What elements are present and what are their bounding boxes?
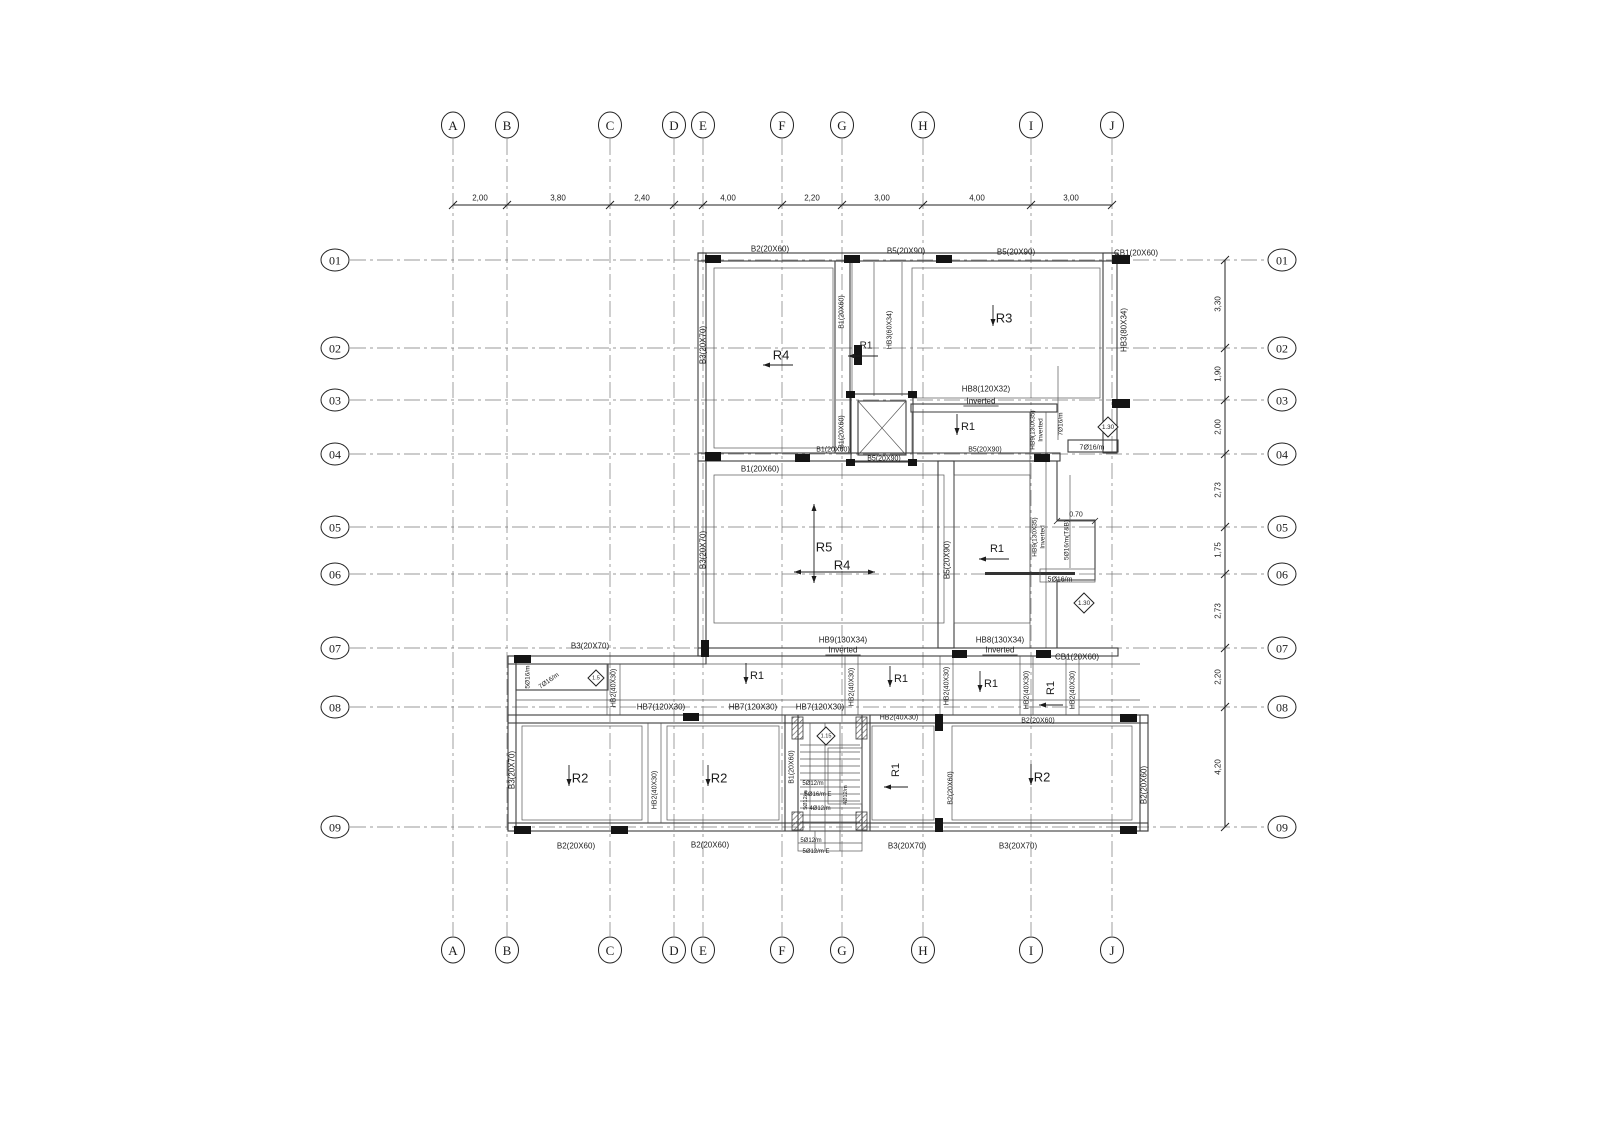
grid-bubble-label: G bbox=[837, 943, 846, 958]
beam-label-rotated: B1(20X60) bbox=[789, 750, 796, 783]
beam-label-rotated: B2(20X60) bbox=[948, 771, 955, 804]
arrowhead bbox=[848, 354, 855, 359]
beam-label-rotated: B3(20X70) bbox=[699, 531, 708, 570]
grid-bubble-label: A bbox=[448, 943, 458, 958]
dimension-value: 1,90 bbox=[1214, 366, 1223, 382]
grid-bubble-label: G bbox=[837, 118, 846, 133]
grid-bubble-label: D bbox=[669, 118, 678, 133]
grid-bubble-label: 06 bbox=[329, 568, 341, 582]
beam-label-rotated: B3(20X70) bbox=[508, 751, 517, 790]
beam-label-rotated: HB2(40X30) bbox=[944, 667, 951, 706]
arrowhead bbox=[763, 363, 770, 368]
room-r3-outline bbox=[912, 268, 1100, 398]
beam-label: B3(20X70) bbox=[888, 842, 927, 851]
dimension-value: 4,00 bbox=[720, 194, 736, 203]
dimension-value: 2,20 bbox=[804, 194, 820, 203]
beam-label-rotated: 4Ø12/m bbox=[843, 785, 849, 805]
beam-label: B2(20X60) bbox=[557, 842, 596, 851]
grid-bubble-label: E bbox=[699, 943, 707, 958]
beam-label-rotated: B1(20X60) bbox=[839, 415, 846, 448]
beam-label: B2(20X60) bbox=[1021, 718, 1054, 725]
grid-bubble-label: 06 bbox=[1276, 568, 1288, 582]
drawing-sheet: AABBCCDDEEFFGGHHIIJJ01010202030304040505… bbox=[0, 0, 1600, 1131]
beam-label: HB7(120X30) bbox=[796, 703, 845, 712]
beam-label: 5Ø12/m E bbox=[802, 849, 829, 855]
grid-bubble-label: E bbox=[699, 118, 707, 133]
dimension-value: 3,00 bbox=[1063, 194, 1079, 203]
arrowhead bbox=[812, 504, 817, 511]
room-label-r4: R4 bbox=[773, 348, 790, 363]
dimension-value: 3,80 bbox=[550, 194, 566, 203]
beam-label: B3(20X70) bbox=[999, 842, 1038, 851]
rebar-bar bbox=[985, 572, 1075, 575]
grid-bubble-label: 01 bbox=[1276, 254, 1288, 268]
grid-bubble-label: 07 bbox=[1276, 642, 1288, 656]
grid-bubble-label: 05 bbox=[1276, 521, 1288, 535]
grid-bubble-label: 04 bbox=[1276, 448, 1288, 462]
beam-wing-top bbox=[508, 656, 706, 664]
room-label-r2: R2 bbox=[572, 771, 589, 786]
grid-bubble-label: C bbox=[606, 943, 615, 958]
grid-bubble-label: I bbox=[1029, 118, 1033, 133]
grid-bubble-label: 09 bbox=[329, 821, 341, 835]
room-label-r1: R1 bbox=[894, 673, 908, 685]
beam-label: HB7(120X30) bbox=[637, 703, 686, 712]
beam-label: HB9(130X34) bbox=[819, 636, 868, 645]
dimension-value: 4,20 bbox=[1214, 759, 1223, 775]
grid-bubble-label: 03 bbox=[329, 394, 341, 408]
grid-bubble-label: J bbox=[1109, 118, 1114, 133]
rebar-label-diagonal: 7Ø16/m bbox=[538, 672, 561, 691]
grid-bubble-label: 08 bbox=[1276, 701, 1288, 715]
dimension-value: 2,73 bbox=[1214, 482, 1223, 498]
grid-bubble-label: I bbox=[1029, 943, 1033, 958]
grid-bubble-label: F bbox=[778, 943, 785, 958]
dimension-value: 2,00 bbox=[1214, 419, 1223, 435]
beam-wing-left bbox=[508, 656, 516, 831]
beam-label: B3(20X70) bbox=[571, 642, 610, 651]
beam-label-rotated: HB2(40X30) bbox=[652, 771, 659, 810]
arrowhead bbox=[979, 557, 986, 562]
level-value: 1.5 bbox=[592, 676, 600, 682]
grid-bubble-label: C bbox=[606, 118, 615, 133]
beam-label: B2(20X60) bbox=[691, 841, 730, 850]
grid-bubble-label: B bbox=[503, 118, 512, 133]
arrowhead bbox=[888, 680, 893, 687]
beam-label-rotated: B5(20X90) bbox=[943, 541, 952, 580]
beam-label-rotated: HB2(40X30) bbox=[1024, 671, 1031, 710]
annotation-layer: AABBCCDDEEFFGGHHIIJJ01010202030304040505… bbox=[321, 112, 1296, 963]
dimension-value: 3,00 bbox=[874, 194, 890, 203]
dimension-value: 2,40 bbox=[634, 194, 650, 203]
grid-bubble-label: 07 bbox=[329, 642, 341, 656]
beam-label-rotated: 7Ø16/m bbox=[1058, 412, 1065, 435]
beam-label: Inverted bbox=[967, 397, 996, 406]
beam-label-rotated: 5Ø16/m bbox=[525, 665, 532, 688]
room-label-r1: R1 bbox=[984, 678, 998, 690]
room-label-r1: R1 bbox=[890, 763, 902, 777]
beam-label: HB2(40X30) bbox=[880, 715, 919, 722]
level-value: 1.30 bbox=[1102, 424, 1115, 431]
beam-label: CB1(20X60) bbox=[1055, 653, 1099, 662]
grid-bubble-label: 02 bbox=[329, 342, 341, 356]
beam-label-rotated: 5Ø12/m bbox=[803, 790, 809, 810]
beam-label-rotated: B1(20X60) bbox=[839, 295, 846, 328]
grid-bubble-label: 04 bbox=[329, 448, 341, 462]
beam-label: Inverted bbox=[986, 646, 1015, 655]
grid-bubble-label: 05 bbox=[329, 521, 341, 535]
beam-label: 5Ø12/m bbox=[802, 781, 823, 787]
room-label-r2: R2 bbox=[1034, 770, 1051, 785]
beam-label-rotated: B2(20X60) bbox=[1140, 766, 1149, 805]
dimension-value: 2,73 bbox=[1214, 603, 1223, 619]
beam-label-rotated: HB3(80X34) bbox=[1120, 308, 1129, 352]
arrowhead bbox=[884, 785, 891, 790]
beam-label-rotated: B3(20X70) bbox=[699, 326, 708, 365]
grid-bubble-label: A bbox=[448, 118, 458, 133]
grid-layer bbox=[350, 139, 1268, 936]
room-r1-outline-low bbox=[872, 726, 934, 820]
grid-bubble-label: 09 bbox=[1276, 821, 1288, 835]
dimension-value: 4,00 bbox=[969, 194, 985, 203]
grid-bubble-label: J bbox=[1109, 943, 1114, 958]
beam-label: 5Ø12/m bbox=[800, 838, 821, 844]
beam-label-rotated: Inverted bbox=[1038, 418, 1045, 442]
arrowhead bbox=[812, 576, 817, 583]
grid-bubble-label: 08 bbox=[329, 701, 341, 715]
grid-bubble-label: H bbox=[918, 943, 927, 958]
beam-label: 7Ø16/m bbox=[1080, 445, 1105, 452]
beam-label: HB7(120X30) bbox=[729, 703, 778, 712]
beam-label-rotated: HB9(130X35) bbox=[1030, 410, 1037, 449]
grid-bubble-label: D bbox=[669, 943, 678, 958]
arrowhead bbox=[955, 428, 960, 435]
beam-label: Inverted bbox=[829, 646, 858, 655]
room-label-r3: R3 bbox=[996, 311, 1013, 326]
beam-label: HB8(120X32) bbox=[962, 385, 1011, 394]
beam-label: 4Ø12/m bbox=[809, 806, 830, 812]
beam-label: B5(20X90) bbox=[867, 456, 900, 463]
dimension-value: 2,20 bbox=[1214, 669, 1223, 685]
beam-label: HB8(130X34) bbox=[976, 636, 1025, 645]
dimension-value: 0.70 bbox=[1069, 512, 1083, 519]
grid-bubble-label: 01 bbox=[329, 254, 341, 268]
dimension-value: 1,75 bbox=[1214, 542, 1223, 558]
beam-label: 5Ø16/m bbox=[1048, 577, 1073, 584]
room-label-r1: R1 bbox=[990, 543, 1004, 555]
beam-label: B5(20X90) bbox=[997, 248, 1036, 257]
beam-label: B5(20X90) bbox=[968, 447, 1001, 454]
beam-label-rotated: HB9(130X35) bbox=[1032, 517, 1039, 556]
arrowhead bbox=[744, 677, 749, 684]
room-label-r1: R1 bbox=[860, 341, 873, 352]
room-label-r2: R2 bbox=[711, 771, 728, 786]
room-label-r5: R5 bbox=[816, 540, 833, 555]
beam-label-rotated: 5Ø16/m(T&B) bbox=[1064, 520, 1071, 560]
beam-label-rotated: HB2(40X30) bbox=[849, 668, 856, 707]
beam-left bbox=[698, 253, 706, 656]
grid-bubble-label: B bbox=[503, 943, 512, 958]
beam-label-rotated: HB2(40X30) bbox=[1070, 671, 1077, 710]
dimension-value: 3,30 bbox=[1214, 296, 1223, 312]
room-label-r1: R1 bbox=[961, 421, 975, 433]
dimension-value: 2,00 bbox=[472, 194, 488, 203]
grid-bubble-label: 03 bbox=[1276, 394, 1288, 408]
floor-plan-svg: AABBCCDDEEFFGGHHIIJJ01010202030304040505… bbox=[0, 0, 1600, 1131]
beam-label-rotated: Inverted bbox=[1040, 525, 1047, 549]
room-label-r1: R1 bbox=[750, 670, 764, 682]
room-label-r1: R1 bbox=[1045, 681, 1057, 695]
grid-bubble-label: 02 bbox=[1276, 342, 1288, 356]
level-value: 1.30 bbox=[1078, 600, 1091, 607]
grid-bubble-label: H bbox=[918, 118, 927, 133]
beam-label: B2(20X60) bbox=[751, 245, 790, 254]
beam-label: B1(20X60) bbox=[741, 465, 780, 474]
beam-label-rotated: HB2(40X30) bbox=[611, 669, 618, 708]
beam-label-rotated: HB3(60X34) bbox=[887, 311, 894, 350]
level-value: 1.15 bbox=[821, 734, 832, 740]
arrowhead bbox=[978, 685, 983, 692]
beam-label: CB1(20X60) bbox=[1114, 249, 1158, 258]
room-label-r4: R4 bbox=[834, 558, 851, 573]
grid-bubble-label: F bbox=[778, 118, 785, 133]
beam-label: B5(20X90) bbox=[887, 247, 926, 256]
